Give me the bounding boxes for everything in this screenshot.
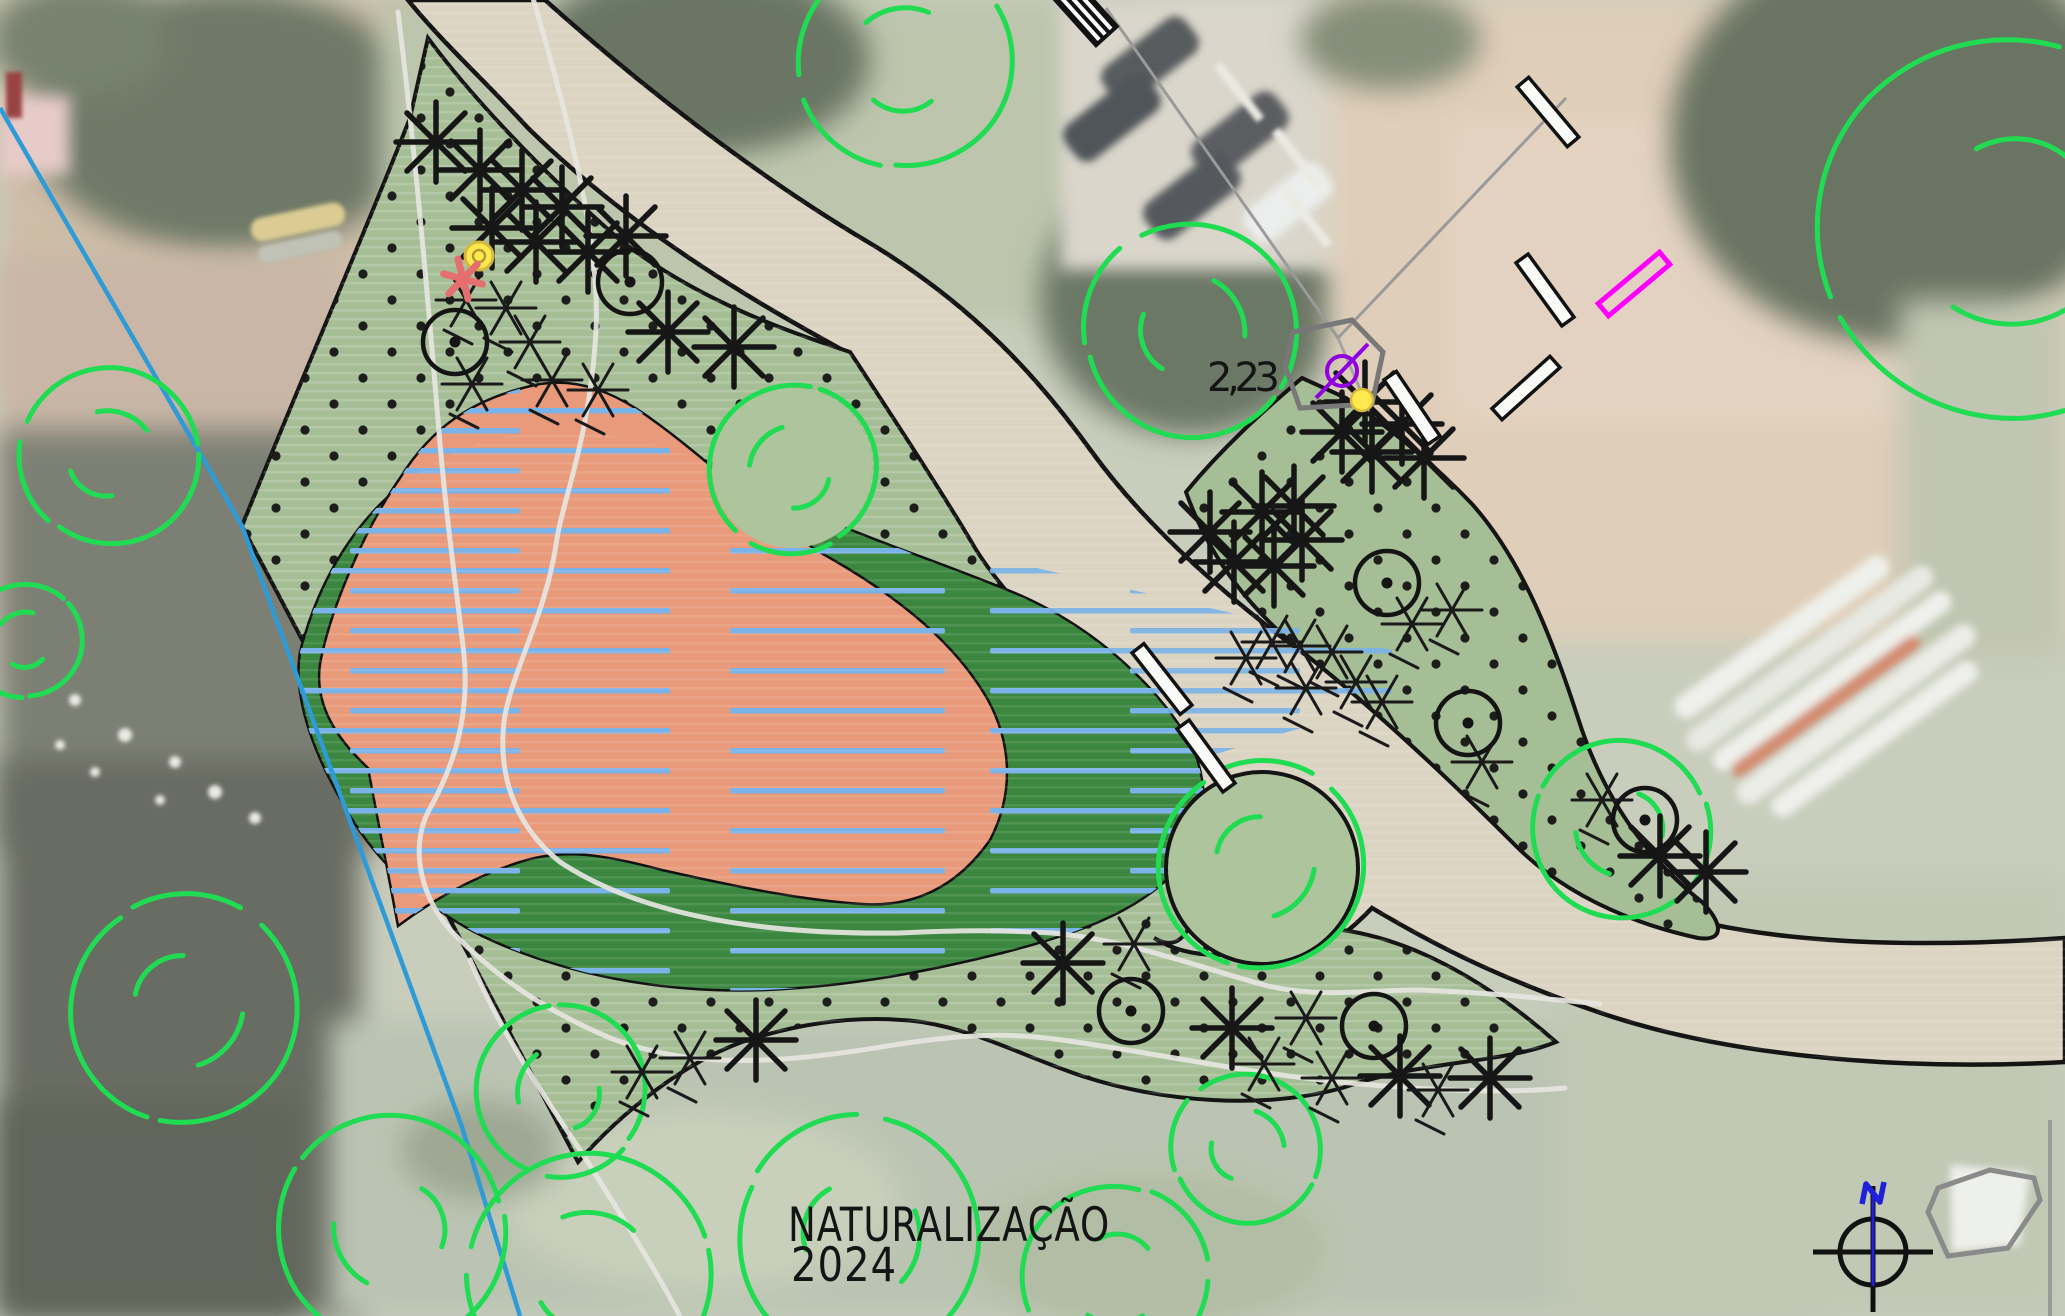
yellow-marker-icon2: [1351, 389, 1373, 411]
tree-asterisk-icon: [716, 1000, 796, 1080]
tree-asterisk-icon: [440, 130, 520, 210]
tree-asterisk-icon: [694, 307, 774, 387]
site-plan-canvas: 2,23 NATURALIZAÇÃO 2024: [0, 0, 2065, 1316]
canopy-circle-path: [1166, 772, 1358, 964]
tree-asterisk-icon: [496, 202, 576, 282]
tree-asterisk-icon: [1023, 923, 1103, 1003]
tree-asterisk-icon: [1666, 832, 1746, 912]
plan-year-text: 2024: [791, 1238, 897, 1293]
elevation-annotation: 2,23: [1207, 355, 1281, 401]
tree-asterisk-icon: [1194, 522, 1274, 602]
site-plan-svg: 2,23 NATURALIZAÇÃO 2024: [0, 0, 2065, 1316]
tree-asterisk-icon: [1450, 1038, 1530, 1118]
tree-asterisk-icon: [628, 292, 708, 372]
canopy-circle-top: [712, 388, 872, 548]
tree-asterisk-icon: [1234, 526, 1314, 606]
